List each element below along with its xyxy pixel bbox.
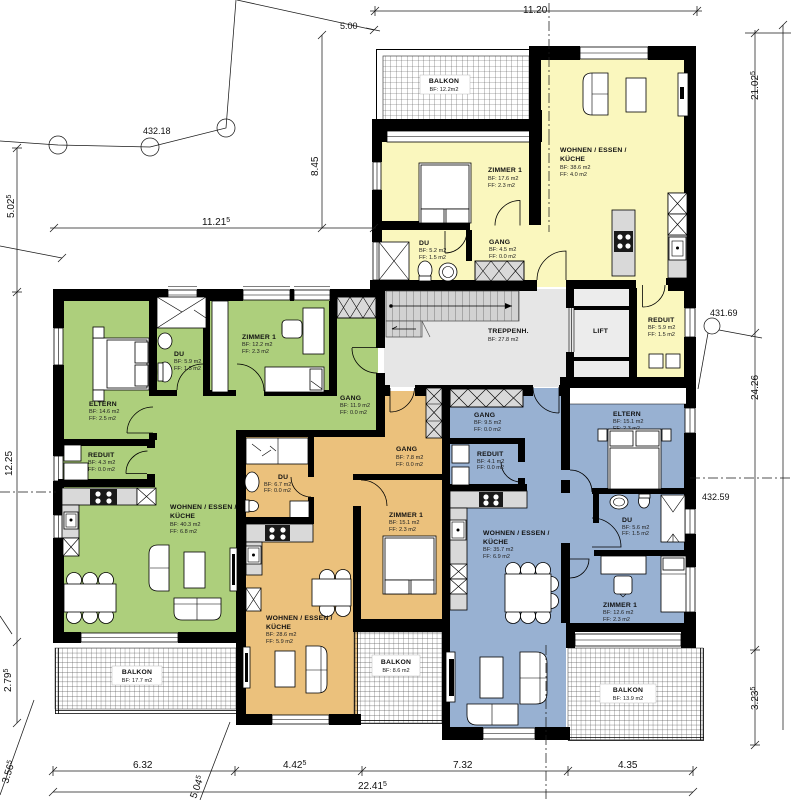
svg-text:22.415: 22.415 xyxy=(358,781,387,792)
svg-text:24.26: 24.26 xyxy=(750,375,761,400)
svg-text:FF: 4.0 m2: FF: 4.0 m2 xyxy=(560,172,587,178)
svg-text:BF: 8.6 m2: BF: 8.6 m2 xyxy=(382,668,409,674)
svg-text:BF: 12.2 m2: BF: 12.2 m2 xyxy=(242,342,272,348)
svg-text:TREPPENH.: TREPPENH. xyxy=(488,328,529,335)
svg-text:FF: 2.3 m2: FF: 2.3 m2 xyxy=(389,527,416,533)
svg-text:BF: 15.1 m2: BF: 15.1 m2 xyxy=(389,520,419,526)
svg-text:BALKON: BALKON xyxy=(613,687,643,694)
svg-text:BF: 14.6 m2: BF: 14.6 m2 xyxy=(89,409,119,415)
svg-text:ELTERN: ELTERN xyxy=(613,411,641,418)
svg-text:11.20: 11.20 xyxy=(523,5,548,16)
svg-text:4.35: 4.35 xyxy=(618,760,638,771)
svg-text:ZIMMER 1: ZIMMER 1 xyxy=(488,167,522,174)
svg-text:FF: 2.5 m2: FF: 2.5 m2 xyxy=(89,416,116,422)
svg-text:BF: 4.5 m2: BF: 4.5 m2 xyxy=(489,247,516,253)
svg-text:7.32: 7.32 xyxy=(453,760,473,771)
svg-text:5.00: 5.00 xyxy=(340,21,358,31)
svg-text:BF: 35.7 m2: BF: 35.7 m2 xyxy=(483,547,513,553)
svg-text:KÜCHE: KÜCHE xyxy=(560,154,585,163)
svg-text:FF: 0.0 m2: FF: 0.0 m2 xyxy=(340,410,367,416)
svg-text:BF: 5.9 m2: BF: 5.9 m2 xyxy=(174,359,201,365)
svg-text:REDUIT: REDUIT xyxy=(477,451,504,458)
svg-text:12.25: 12.25 xyxy=(4,451,15,476)
svg-text:BF: 12.6 m2: BF: 12.6 m2 xyxy=(603,610,633,616)
svg-text:FF: 1.5 m2: FF: 1.5 m2 xyxy=(419,255,446,261)
svg-text:REDUIT: REDUIT xyxy=(88,452,115,459)
svg-text:KÜCHE: KÜCHE xyxy=(170,511,195,520)
svg-text:BF: 15.1 m2: BF: 15.1 m2 xyxy=(613,419,643,425)
svg-text:KÜCHE: KÜCHE xyxy=(266,622,291,631)
svg-text:WOHNEN / ESSEN /: WOHNEN / ESSEN / xyxy=(560,147,627,154)
svg-text:8.45: 8.45 xyxy=(310,156,321,176)
svg-text:432.18: 432.18 xyxy=(143,126,171,136)
svg-text:GANG: GANG xyxy=(340,395,361,402)
svg-text:ZIMMER 1: ZIMMER 1 xyxy=(242,334,276,341)
svg-text:FF: 1.5 m2: FF: 1.5 m2 xyxy=(622,531,649,537)
svg-text:GANG: GANG xyxy=(489,239,510,246)
svg-text:11.215: 11.215 xyxy=(202,217,230,228)
svg-text:FF: 0.0 m2: FF: 0.0 m2 xyxy=(396,462,423,468)
svg-text:BF: 11.9 m2: BF: 11.9 m2 xyxy=(340,403,370,409)
svg-text:GANG: GANG xyxy=(396,446,417,453)
svg-text:BF: 28.6 m2: BF: 28.6 m2 xyxy=(266,632,296,638)
svg-text:DU: DU xyxy=(419,240,429,247)
svg-text:BALKON: BALKON xyxy=(429,78,459,85)
svg-text:BF: 5.2 m2: BF: 5.2 m2 xyxy=(419,248,446,254)
svg-text:KÜCHE: KÜCHE xyxy=(483,537,508,546)
svg-text:GANG: GANG xyxy=(474,412,495,419)
svg-text:BF: 4.3 m2: BF: 4.3 m2 xyxy=(88,460,115,466)
svg-text:BALKON: BALKON xyxy=(381,659,411,666)
svg-text:BF: 17.6 m2: BF: 17.6 m2 xyxy=(488,176,518,182)
svg-text:FF: 1.5 m2: FF: 1.5 m2 xyxy=(648,332,675,338)
svg-text:DU: DU xyxy=(622,517,632,524)
svg-text:432.59: 432.59 xyxy=(702,492,730,502)
svg-text:FF: 0.0 m2: FF: 0.0 m2 xyxy=(477,465,504,471)
svg-text:BF: 40.3 m2: BF: 40.3 m2 xyxy=(170,522,200,528)
svg-text:DU: DU xyxy=(174,351,184,358)
svg-text:FF: 2.3 m2: FF: 2.3 m2 xyxy=(603,617,630,623)
svg-text:REDUIT: REDUIT xyxy=(648,317,675,324)
svg-text:ZIMMER 1: ZIMMER 1 xyxy=(603,602,637,609)
svg-text:FF: 0.0 m2: FF: 0.0 m2 xyxy=(88,467,115,473)
svg-text:FF: 0.0 m2: FF: 0.0 m2 xyxy=(264,488,291,494)
svg-text:BALKON: BALKON xyxy=(122,669,152,676)
svg-text:FF: 6.9 m2: FF: 6.9 m2 xyxy=(483,554,510,560)
svg-text:BF: 7.8 m2: BF: 7.8 m2 xyxy=(396,455,423,461)
svg-text:FF: 2.3 m2: FF: 2.3 m2 xyxy=(488,183,515,189)
svg-text:FF: 5.9 m2: FF: 5.9 m2 xyxy=(266,639,293,645)
svg-text:ELTERN: ELTERN xyxy=(89,401,117,408)
svg-text:BF: 12.2m2: BF: 12.2m2 xyxy=(430,87,459,93)
svg-text:6.32: 6.32 xyxy=(133,760,153,771)
svg-text:431.69: 431.69 xyxy=(710,308,738,318)
svg-text:FF: 6.8 m2: FF: 6.8 m2 xyxy=(170,529,197,535)
svg-text:BF: 9.5 m2: BF: 9.5 m2 xyxy=(474,420,501,426)
svg-text:BF: 27.8 m2: BF: 27.8 m2 xyxy=(488,337,518,343)
svg-text:FF: 2.3 m2: FF: 2.3 m2 xyxy=(242,349,269,355)
svg-text:FF: 0.0 m2: FF: 0.0 m2 xyxy=(489,254,516,260)
svg-text:DU: DU xyxy=(278,474,288,481)
svg-text:FF: 1.5 m2: FF: 1.5 m2 xyxy=(174,366,201,372)
svg-text:BF: 5.9 m2: BF: 5.9 m2 xyxy=(648,325,675,331)
svg-text:WOHNEN / ESSEN /: WOHNEN / ESSEN / xyxy=(266,615,333,622)
svg-text:WOHNEN / ESSEN /: WOHNEN / ESSEN / xyxy=(170,504,237,511)
svg-text:BF: 13.9 m2: BF: 13.9 m2 xyxy=(613,696,643,702)
svg-text:FF: 0.0 m2: FF: 0.0 m2 xyxy=(474,427,501,433)
svg-text:21.025: 21.025 xyxy=(750,71,761,100)
svg-text:BF: 17.7 m2: BF: 17.7 m2 xyxy=(122,678,152,684)
svg-text:BF: 38.6 m2: BF: 38.6 m2 xyxy=(560,165,590,171)
svg-text:LIFT: LIFT xyxy=(593,328,609,335)
svg-text:ZIMMER 1: ZIMMER 1 xyxy=(389,512,423,519)
svg-text:WOHNEN / ESSEN /: WOHNEN / ESSEN / xyxy=(483,530,550,537)
